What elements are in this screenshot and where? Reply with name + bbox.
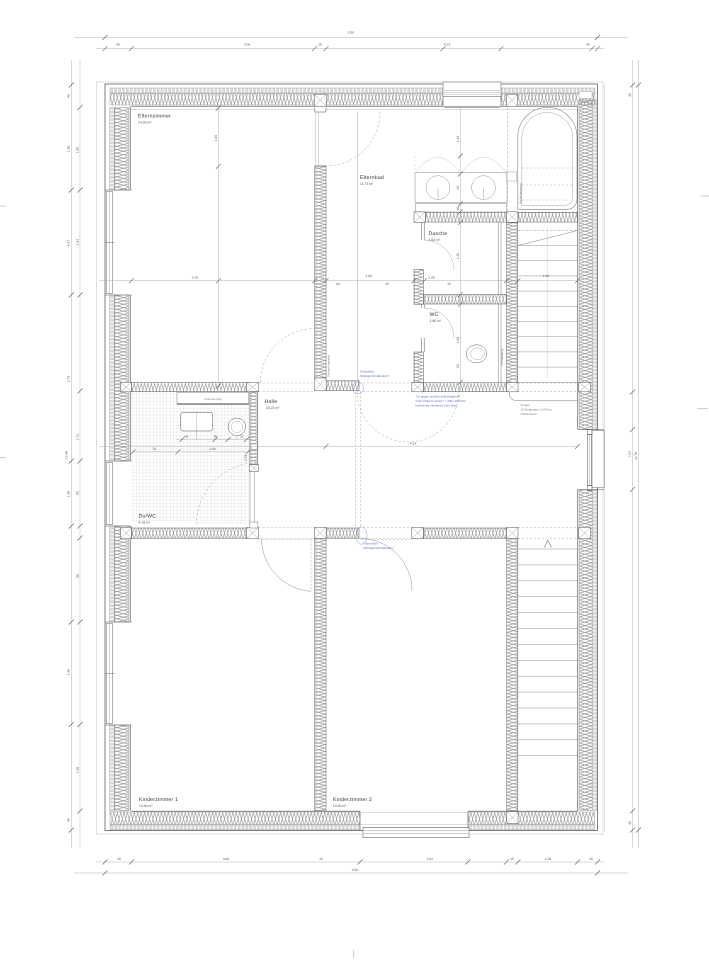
svg-text:15: 15 (319, 857, 323, 861)
svg-text:8.50: 8.50 (348, 31, 355, 35)
svg-text:45: 45 (116, 43, 120, 47)
svg-text:96: 96 (76, 574, 80, 578)
svg-text:Elternzimmer: Elternzimmer (138, 114, 171, 120)
svg-text:25: 25 (385, 282, 389, 286)
svg-text:45: 45 (628, 93, 632, 97)
svg-text:15: 15 (318, 43, 322, 47)
svg-text:1.36: 1.36 (67, 146, 71, 153)
svg-text:WC: WC (430, 312, 439, 318)
svg-text:60: 60 (185, 435, 189, 439)
svg-text:1.25: 1.25 (428, 276, 435, 280)
svg-text:2.35: 2.35 (244, 455, 248, 462)
svg-text:Einhängewanne: Einhängewanne (519, 183, 523, 204)
svg-text:Türposition: Türposition (360, 370, 375, 374)
svg-text:2.62: 2.62 (427, 857, 434, 861)
svg-text:Tür gegen aussen aufschlagend?: Tür gegen aussen aufschlagend? (416, 395, 461, 399)
svg-text:4.33: 4.33 (410, 441, 417, 445)
svg-text:Halle: Halle (265, 399, 278, 405)
svg-text:1.08: 1.08 (456, 337, 460, 344)
svg-text:14.00 m²: 14.00 m² (333, 804, 347, 808)
svg-text:22: 22 (240, 435, 244, 439)
svg-text:1.00: 1.00 (545, 857, 552, 861)
svg-text:1.00: 1.00 (543, 274, 550, 278)
svg-text:4.19 m²: 4.19 m² (139, 521, 151, 525)
svg-text:1.00: 1.00 (214, 135, 218, 142)
svg-text:Kinderzimmer 1: Kinderzimmer 1 (139, 797, 178, 803)
svg-text:15: 15 (510, 857, 514, 861)
svg-text:4.37: 4.37 (67, 240, 71, 247)
svg-text:1.81: 1.81 (76, 239, 80, 246)
svg-text:kommt die niemand in der Weg: kommt die niemand in der Weg (416, 404, 458, 408)
svg-text:65: 65 (76, 491, 80, 495)
svg-text:Elternbad: Elternbad (360, 175, 384, 181)
svg-text:90: 90 (214, 435, 218, 439)
svg-text:16 Steigungen à 18.5cm: 16 Steigungen à 18.5cm (521, 408, 553, 412)
svg-text:3.72: 3.72 (67, 376, 71, 383)
svg-text:Vormauerung: Vormauerung (204, 397, 222, 401)
svg-text:Türposition: Türposition (363, 542, 378, 546)
svg-text:Abhängen/Endpunkte?: Abhängen/Endpunkte? (363, 546, 394, 550)
svg-text:1.56: 1.56 (76, 767, 80, 774)
svg-text:11.73 m²: 11.73 m² (360, 182, 374, 186)
svg-text:45: 45 (628, 821, 632, 825)
svg-text:45: 45 (586, 43, 590, 47)
svg-text:Auftritt 26cm: Auftritt 26cm (521, 412, 538, 416)
svg-text:11.78: 11.78 (634, 452, 638, 460)
svg-text:1.98: 1.98 (209, 447, 216, 451)
svg-text:20: 20 (456, 207, 460, 211)
svg-text:1.86 m²: 1.86 m² (430, 319, 442, 323)
svg-text:1.90: 1.90 (365, 274, 372, 278)
svg-text:Vormauerung: Vormauerung (500, 348, 504, 366)
svg-text:Du/WC: Du/WC (139, 514, 157, 520)
svg-text:40: 40 (456, 186, 460, 190)
svg-text:12.48: 12.48 (65, 451, 69, 459)
svg-text:90: 90 (336, 282, 340, 286)
svg-text:45: 45 (589, 857, 593, 861)
svg-text:50: 50 (456, 364, 460, 368)
svg-text:3.06: 3.06 (244, 43, 251, 47)
svg-text:2.15: 2.15 (192, 276, 199, 280)
svg-text:Dusche: Dusche (429, 231, 448, 237)
svg-text:45: 45 (117, 857, 121, 861)
svg-text:70: 70 (152, 447, 156, 451)
svg-text:mehr Platz im Innen? + offen W: mehr Platz im Innen? + offen Wohnen (416, 399, 467, 403)
svg-text:1.71: 1.71 (76, 434, 80, 441)
svg-text:1.10: 1.10 (456, 136, 460, 143)
svg-text:Kinderzimmer 2: Kinderzimmer 2 (333, 797, 372, 803)
svg-text:Treppe: Treppe (521, 403, 530, 407)
svg-text:1.60 m²: 1.60 m² (429, 238, 441, 242)
svg-text:1.35: 1.35 (456, 253, 460, 260)
svg-text:10.22 m²: 10.22 m² (266, 406, 280, 410)
svg-text:14.00 m²: 14.00 m² (139, 804, 153, 808)
svg-text:45: 45 (67, 94, 71, 98)
svg-text:1.06: 1.06 (67, 491, 71, 498)
svg-text:45: 45 (67, 818, 71, 822)
svg-text:8.50: 8.50 (352, 868, 359, 872)
svg-text:Schrank bauseits: Schrank bauseits (327, 354, 331, 377)
svg-text:1.85: 1.85 (76, 147, 80, 154)
svg-text:4.23: 4.23 (444, 43, 451, 47)
svg-text:7.97: 7.97 (628, 451, 632, 458)
svg-text:14.93 m²: 14.93 m² (138, 121, 152, 125)
svg-text:1.66: 1.66 (67, 669, 71, 676)
svg-text:15: 15 (447, 282, 451, 286)
svg-text:Anfangen/Endpunkte?: Anfangen/Endpunkte? (360, 374, 390, 378)
svg-text:3.68: 3.68 (223, 857, 230, 861)
